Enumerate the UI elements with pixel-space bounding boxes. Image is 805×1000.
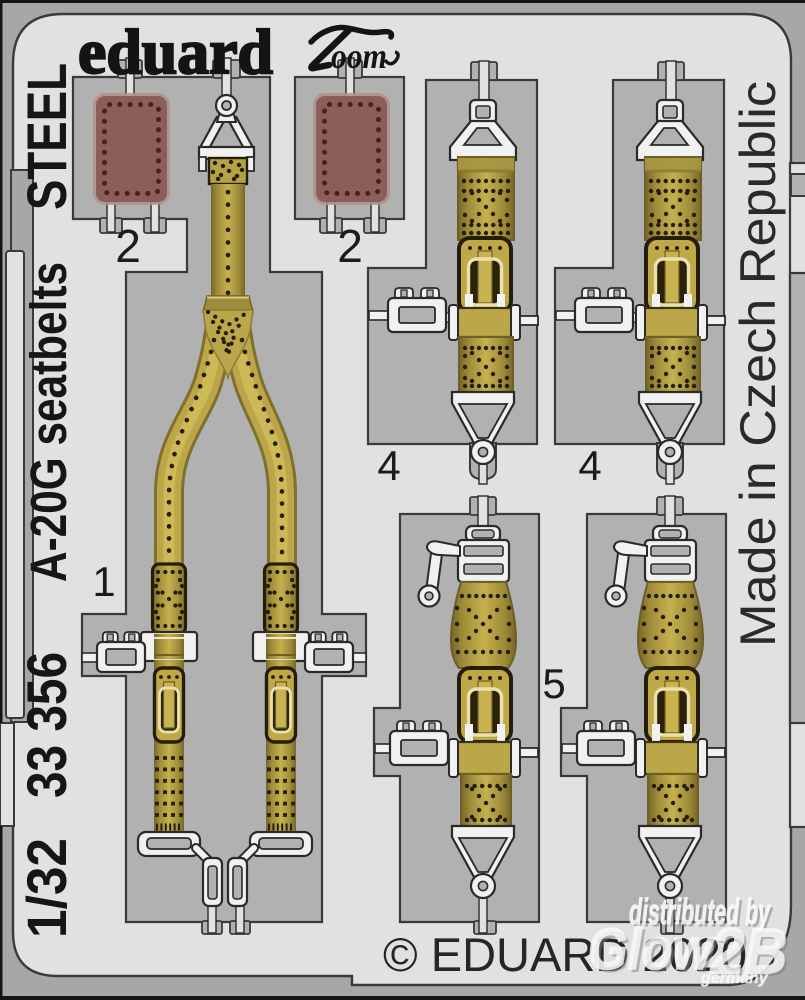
svg-text:STEEL: STEEL bbox=[15, 63, 78, 210]
svg-text:2: 2 bbox=[337, 220, 363, 272]
svg-text:33 356: 33 356 bbox=[15, 652, 78, 798]
svg-text:5: 5 bbox=[542, 660, 565, 707]
svg-text:Made in Czech Republic: Made in Czech Republic bbox=[730, 81, 786, 647]
svg-text:eduard: eduard bbox=[78, 16, 273, 87]
svg-text:4: 4 bbox=[377, 442, 400, 489]
svg-text:oom: oom bbox=[331, 36, 387, 76]
svg-text:1: 1 bbox=[92, 558, 115, 605]
svg-text:Glow: Glow bbox=[588, 917, 715, 982]
svg-text:4: 4 bbox=[578, 442, 601, 489]
svg-text:1/32: 1/32 bbox=[15, 838, 78, 938]
svg-text:germany: germany bbox=[700, 970, 769, 987]
svg-text:2: 2 bbox=[115, 220, 141, 272]
svg-text:A-20G seatbelts: A-20G seatbelts bbox=[20, 262, 77, 582]
